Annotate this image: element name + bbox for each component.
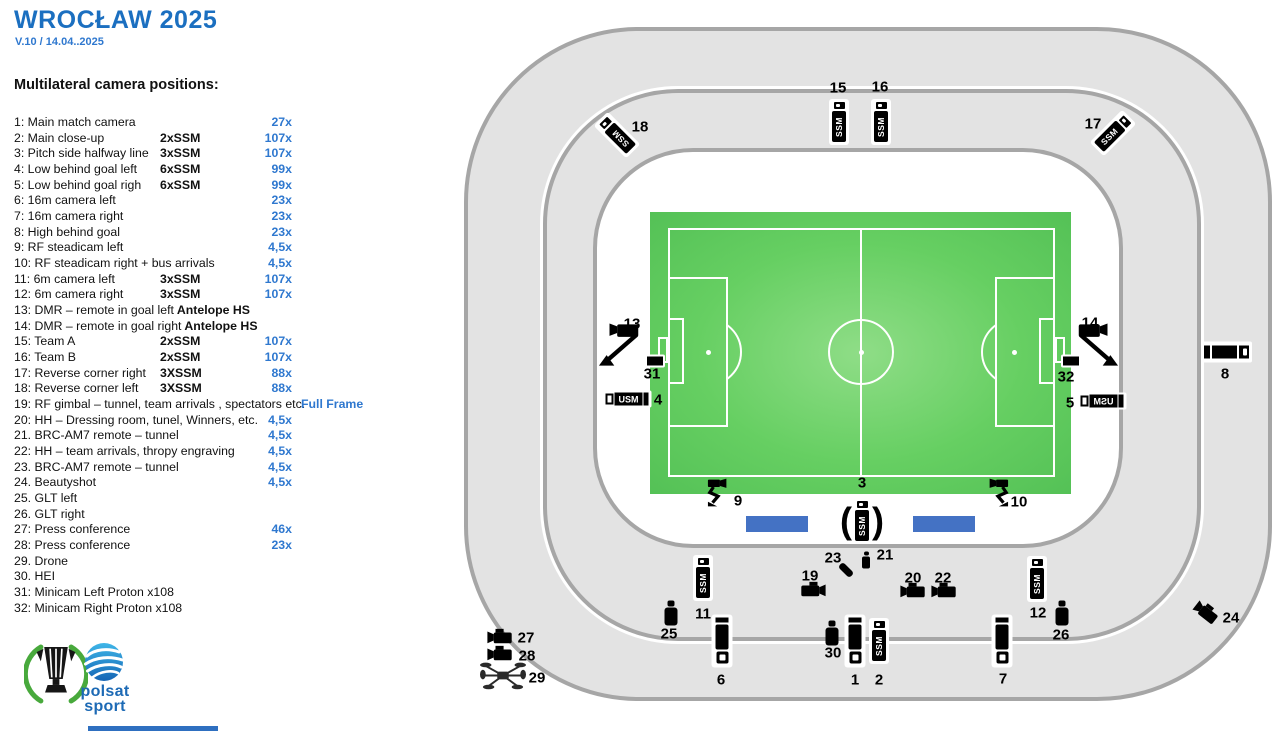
glt-camera-icon xyxy=(665,601,678,626)
camera-list-row-label: 6: 16m camera left xyxy=(14,193,116,207)
camera-number-label: 6 xyxy=(717,672,725,689)
camera-list-row: 7: 16m camera right23x xyxy=(14,209,123,224)
polsat-sport-wordmark: polsat sport xyxy=(70,684,140,714)
camera-zoom-value: 107x xyxy=(210,272,292,286)
camera-marker-6 xyxy=(712,615,733,668)
camera-zoom-value: 46x xyxy=(210,522,292,536)
camera-spec: 3xSSM xyxy=(160,272,200,286)
camera-list-row-label: 10: RF steadicam right + bus arrivals xyxy=(14,256,215,270)
camera-list-row: 18: Reverse corner left3XSSM88x xyxy=(14,381,138,396)
footer-accent-bar xyxy=(88,726,218,731)
camera-zoom-value: 4,5x xyxy=(210,475,292,489)
camera-list-row-label: 18: Reverse corner left xyxy=(14,381,138,395)
ssm-camera-icon: SSM xyxy=(871,99,891,145)
camera-list-row: 25. GLT left xyxy=(14,491,77,506)
camera-marker-12: SSM xyxy=(1027,556,1047,602)
camera-number-label: 1 xyxy=(851,672,859,689)
camera-list-row-label: 2: Main close-up xyxy=(14,131,104,145)
studio-camera-icon xyxy=(712,615,733,668)
camera-number-label: 19 xyxy=(802,568,819,585)
studio-camera-icon xyxy=(992,615,1013,668)
camera-number-label: 13 xyxy=(624,316,641,333)
camera-list-row-label: 7: 16m camera right xyxy=(14,209,123,223)
camera-list-row-label: 24. Beautyshot xyxy=(14,475,96,489)
camera-marker-15: SSM xyxy=(829,99,849,145)
camera-marker-29 xyxy=(480,659,526,697)
camera-zoom-value: 4,5x xyxy=(210,460,292,474)
camera-list-row-label: 12: 6m camera right xyxy=(14,287,123,301)
camera-number-label: 17 xyxy=(1085,116,1102,133)
camera-number-label: 11 xyxy=(695,606,711,623)
camera-zoom-value: 99x xyxy=(210,178,292,192)
camera-zoom-value: Full Frame xyxy=(301,397,391,411)
camera-number-label: 28 xyxy=(519,648,536,665)
camera-number-label: 10 xyxy=(1011,494,1028,511)
camera-list-row: 22: HH – team arrivals, thropy engraving… xyxy=(14,444,235,459)
camera-list-row-label: 22: HH – team arrivals, thropy engraving xyxy=(14,444,235,458)
camera-list-row-label: 31: Minicam Left Proton x108 xyxy=(14,585,174,599)
camera-marker-30 xyxy=(826,621,839,646)
camera-number-label: 9 xyxy=(734,493,742,510)
camera-marker-5: USM xyxy=(1078,393,1127,410)
camera-zoom-value: 23x xyxy=(210,193,292,207)
camera-number-label: 21 xyxy=(877,547,894,564)
camera-number-label: 30 xyxy=(825,645,842,662)
drone-icon xyxy=(480,659,526,697)
camera-spec: 6xSSM xyxy=(160,178,200,192)
center-spot xyxy=(859,350,864,355)
camera-list-row-label: 21. BRC-AM7 remote – tunnel xyxy=(14,428,179,442)
camera-number-label: 8 xyxy=(1221,366,1229,383)
camera-zoom-value: 107x xyxy=(210,146,292,160)
camera-list-row: 28: Press conference23x xyxy=(14,538,130,553)
camera-list-row: 31: Minicam Left Proton x108 xyxy=(14,585,174,600)
camera-list-row: 17: Reverse corner right3XSSM88x xyxy=(14,366,146,381)
handheld-camera-icon xyxy=(838,567,854,574)
camera-zoom-value: 88x xyxy=(210,366,292,380)
camera-zoom-value: 99x xyxy=(210,162,292,176)
ssm-camera-icon: SSM xyxy=(829,99,849,145)
camera-marker-1 xyxy=(845,615,866,668)
camera-list-row-label: 9: RF steadicam left xyxy=(14,240,123,254)
camera-list-row-label: 11: 6m camera left xyxy=(14,272,115,286)
camera-list-row-label: 14: DMR – remote in goal right Antelope … xyxy=(14,319,258,333)
camera-list-row: 16: Team B2xSSM107x xyxy=(14,350,76,365)
camera-marker-18: SSM xyxy=(607,112,627,158)
camera-number-label: 3 xyxy=(858,475,866,492)
camera-list: 1: Main match camera27x2: Main close-up2… xyxy=(0,0,380,731)
penalty-arc-right xyxy=(981,318,995,387)
camera-marker-3: (SSM) xyxy=(840,498,884,544)
camera-list-row: 12: 6m camera right3xSSM107x xyxy=(14,287,123,302)
camera-number-label: 22 xyxy=(935,570,952,587)
usm-camera-icon: USM xyxy=(603,391,652,408)
camera-list-row: 2: Main close-up2xSSM107x xyxy=(14,131,104,146)
camera-list-row: 10: RF steadicam right + bus arrivals4,5… xyxy=(14,256,215,271)
camera-spec: 3XSSM xyxy=(160,381,202,395)
team-bench xyxy=(746,516,808,532)
camera-plan-slide: WROCŁAW 2025 V.10 / 14.04..2025 Multilat… xyxy=(0,0,1280,731)
camera-marker-21 xyxy=(862,552,870,569)
camera-list-row-label: 5: Low behind goal righ xyxy=(14,178,141,192)
camera-spec: 3xSSM xyxy=(160,287,200,301)
ssm-camera-icon: SSM xyxy=(1027,556,1047,602)
camera-number-label: 16 xyxy=(872,79,889,96)
camera-spec: 3xSSM xyxy=(160,146,200,160)
camera-list-row-label: 13: DMR – remote in goal left Antelope H… xyxy=(14,303,250,317)
camera-zoom-value: 107x xyxy=(210,334,292,348)
camera-list-row: 20: HH – Dressing room, tunel, Winners, … xyxy=(14,413,258,428)
ssm-camera-icon: SSM xyxy=(693,555,713,601)
camera-zoom-value: 88x xyxy=(210,381,292,395)
camera-marker-19 xyxy=(800,582,827,603)
camera-spec: 2xSSM xyxy=(160,350,200,364)
ssm-camera-icon: SSM xyxy=(869,618,889,664)
camera-list-row: 27: Press conference46x xyxy=(14,522,130,537)
camera-list-row: 13: DMR – remote in goal left Antelope H… xyxy=(14,303,250,318)
camera-list-row-label: 28: Press conference xyxy=(14,538,130,552)
camera-marker-32 xyxy=(1061,355,1081,368)
camera-spec: 2xSSM xyxy=(160,131,200,145)
camera-zoom-value: 4,5x xyxy=(210,428,292,442)
camera-spec: 3XSSM xyxy=(160,366,202,380)
camera-number-label: 2 xyxy=(875,672,883,689)
camera-list-row: 3: Pitch side halfway line3xSSM107x xyxy=(14,146,149,161)
camera-list-row: 15: Team A2xSSM107x xyxy=(14,334,75,349)
camera-list-row-label: 23. BRC-AM7 remote – tunnel xyxy=(14,460,179,474)
camera-list-row: 11: 6m camera left3xSSM107x xyxy=(14,272,115,287)
camera-list-row-label: 26. GLT right xyxy=(14,507,85,521)
camera-list-row: 5: Low behind goal righ6xSSM99x xyxy=(14,178,141,193)
camera-marker-9 xyxy=(707,478,731,513)
penalty-arc-left xyxy=(728,318,744,387)
camera-list-row-label: 29. Drone xyxy=(14,554,68,568)
trophy-base xyxy=(45,685,67,693)
camera-list-row: 14: DMR – remote in goal right Antelope … xyxy=(14,319,258,334)
camera-list-row-label: 15: Team A xyxy=(14,334,75,348)
studio-camera-icon xyxy=(845,615,866,668)
ssm-camera-icon: (SSM) xyxy=(840,498,884,544)
camera-zoom-value: 4,5x xyxy=(210,256,292,270)
minicam-icon xyxy=(1061,355,1081,368)
camera-list-row: 24. Beautyshot4,5x xyxy=(14,475,96,490)
camera-list-row: 1: Main match camera27x xyxy=(14,115,136,130)
camera-list-row-label: 27: Press conference xyxy=(14,522,130,536)
camcorder-icon xyxy=(800,582,827,603)
glt-camera-icon xyxy=(826,621,839,646)
camera-marker-23 xyxy=(838,567,854,574)
camera-list-row: 6: 16m camera left23x xyxy=(14,193,116,208)
camera-number-label: 24 xyxy=(1223,610,1240,627)
camera-list-row: 21. BRC-AM7 remote – tunnel4,5x xyxy=(14,428,179,443)
camera-number-label: 32 xyxy=(1058,369,1075,386)
camera-marker-10 xyxy=(985,478,1009,513)
camera-marker-16: SSM xyxy=(871,99,891,145)
camera-list-row-label: 19: RF gimbal – tunnel, team arrivals , … xyxy=(14,397,305,411)
camera-zoom-value: 23x xyxy=(210,209,292,223)
camera-number-label: 4 xyxy=(654,392,662,409)
steadicam-icon xyxy=(985,478,1009,513)
polsat-sphere-icon xyxy=(84,642,124,687)
camera-list-row: 26. GLT right xyxy=(14,507,85,522)
camera-number-label: 12 xyxy=(1030,605,1047,622)
camera-zoom-value: 107x xyxy=(210,287,292,301)
camera-marker-4: USM xyxy=(603,391,652,408)
camera-list-row-label: 8: High behind goal xyxy=(14,225,120,239)
camera-zoom-value: 107x xyxy=(210,350,292,364)
high-behind-goal-camera-icon xyxy=(1202,342,1252,363)
camera-number-label: 26 xyxy=(1053,627,1070,644)
camera-marker-8 xyxy=(1202,342,1252,363)
camera-list-row-label: 17: Reverse corner right xyxy=(14,366,146,380)
camera-list-row: 23. BRC-AM7 remote – tunnel4,5x xyxy=(14,460,179,475)
camera-number-label: 5 xyxy=(1066,395,1074,412)
camera-list-row-label: 30. HEI xyxy=(14,569,55,583)
goal-area-left xyxy=(668,318,684,384)
camera-list-row: 9: RF steadicam left4,5x xyxy=(14,240,123,255)
camera-marker-11: SSM xyxy=(693,555,713,601)
camera-list-row: 8: High behind goal23x xyxy=(14,225,120,240)
camera-list-row-label: 3: Pitch side halfway line xyxy=(14,146,149,160)
penalty-spot-left xyxy=(706,350,711,355)
camera-list-row-label: 25. GLT left xyxy=(14,491,77,505)
team-bench xyxy=(913,516,975,532)
camera-list-row: 32: Minicam Right Proton x108 xyxy=(14,601,182,616)
camera-marker-25 xyxy=(665,601,678,626)
camera-zoom-value: 23x xyxy=(210,225,292,239)
glt-camera-icon xyxy=(1056,601,1069,626)
camera-number-label: 7 xyxy=(999,671,1007,688)
camera-number-label: 29 xyxy=(529,670,546,687)
camera-list-row-label: 32: Minicam Right Proton x108 xyxy=(14,601,182,615)
camera-list-row: 19: RF gimbal – tunnel, team arrivals , … xyxy=(14,397,305,412)
camera-zoom-value: 4,5x xyxy=(210,444,292,458)
camera-zoom-value: 4,5x xyxy=(210,240,292,254)
camera-list-row-label: 1: Main match camera xyxy=(14,115,136,129)
pitch xyxy=(650,212,1071,494)
camera-number-label: 23 xyxy=(825,550,842,567)
camera-spec: 6xSSM xyxy=(160,162,200,176)
camera-number-label: 25 xyxy=(661,626,678,643)
camera-number-label: 14 xyxy=(1082,315,1099,332)
camera-list-row-label: 4: Low behind goal left xyxy=(14,162,137,176)
goal-area-right xyxy=(1039,318,1055,384)
steadicam-icon xyxy=(707,478,731,513)
camera-marker-7 xyxy=(992,615,1013,668)
camera-number-label: 20 xyxy=(905,570,922,587)
camera-zoom-value: 23x xyxy=(210,538,292,552)
camera-marker-2: SSM xyxy=(869,618,889,664)
remote-mic-icon xyxy=(862,552,870,569)
camera-marker-26 xyxy=(1056,601,1069,626)
penalty-spot-right xyxy=(1012,350,1017,355)
camera-marker-17: SSM xyxy=(1103,110,1123,156)
camera-zoom-value: 4,5x xyxy=(210,413,292,427)
camera-number-label: 15 xyxy=(830,80,847,97)
camera-zoom-value: 27x xyxy=(210,115,292,129)
camera-number-label: 18 xyxy=(632,119,649,136)
camera-spec: 2xSSM xyxy=(160,334,200,348)
camera-number-label: 31 xyxy=(644,366,661,383)
camera-list-row: 29. Drone xyxy=(14,554,68,569)
camera-list-row-label: 16: Team B xyxy=(14,350,76,364)
camera-number-label: 27 xyxy=(518,630,535,647)
usm-camera-icon: USM xyxy=(1078,393,1127,410)
camera-marker-24 xyxy=(1192,604,1219,625)
camera-list-row: 30. HEI xyxy=(14,569,55,584)
camera-zoom-value: 107x xyxy=(210,131,292,145)
camera-list-row: 4: Low behind goal left6xSSM99x xyxy=(14,162,137,177)
